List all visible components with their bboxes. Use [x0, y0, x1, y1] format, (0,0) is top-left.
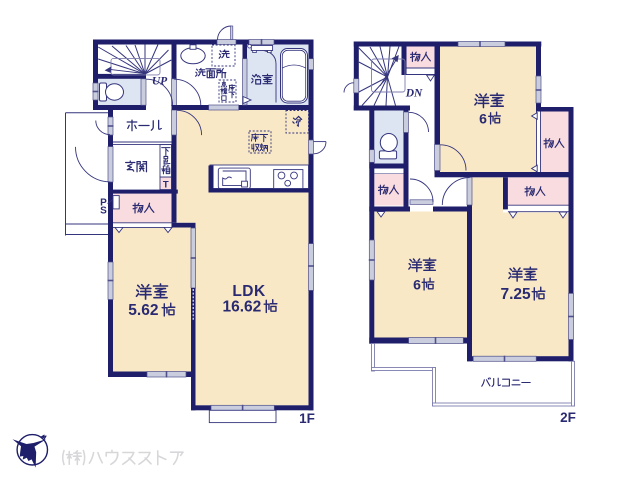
svg-text:5.62: 5.62 — [128, 302, 158, 319]
svg-text:6: 6 — [479, 111, 487, 127]
svg-text:7.25: 7.25 — [501, 286, 532, 303]
svg-text:LDK: LDK — [232, 283, 266, 300]
svg-text:T: T — [163, 179, 169, 190]
svg-text:DN: DN — [405, 88, 423, 100]
svg-text:UP: UP — [152, 76, 168, 88]
svg-text:S: S — [100, 206, 107, 217]
svg-text:16.62: 16.62 — [223, 299, 262, 316]
svg-text:6: 6 — [413, 277, 421, 293]
svg-text:2F: 2F — [560, 410, 576, 425]
svg-text:1F: 1F — [299, 411, 315, 426]
